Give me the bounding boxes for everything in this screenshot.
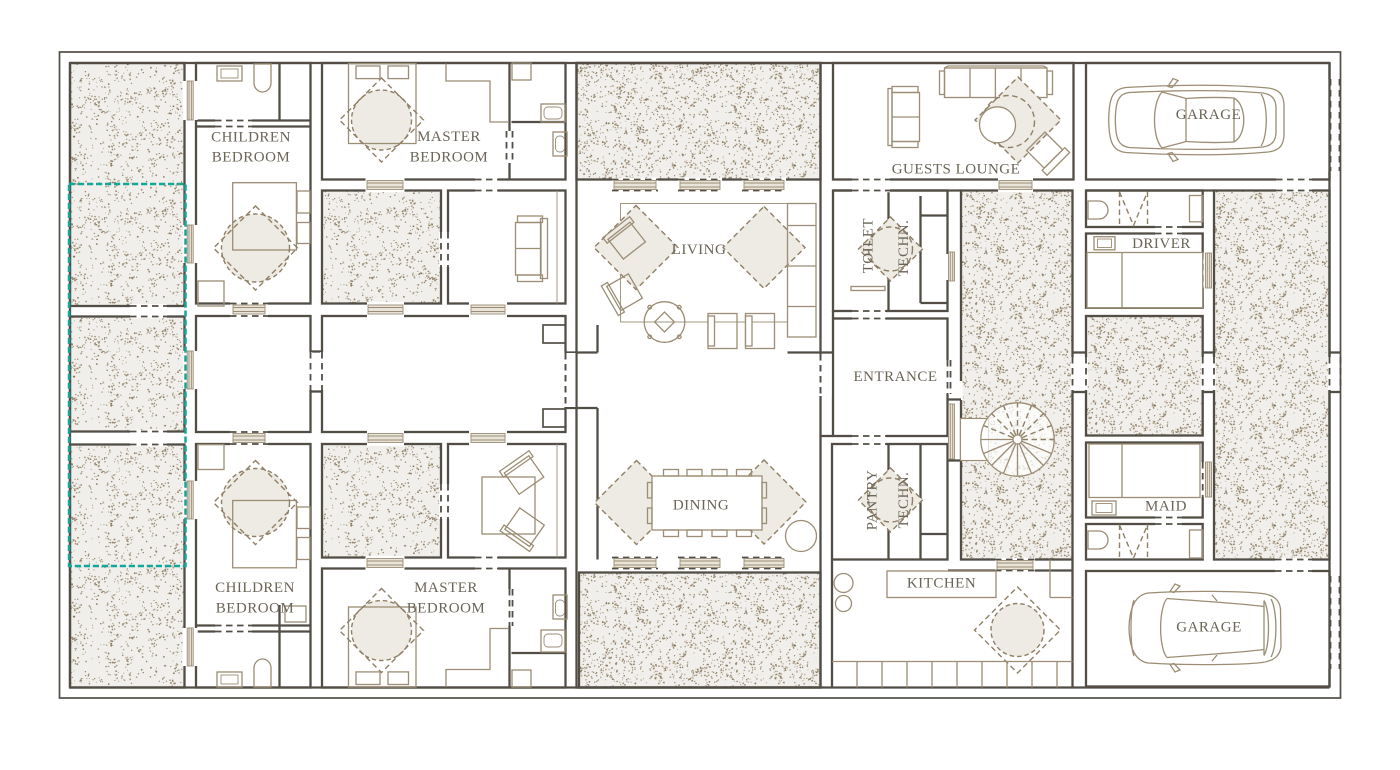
svg-text:LIVING: LIVING xyxy=(672,242,727,258)
svg-text:CHILDREN: CHILDREN xyxy=(211,130,291,146)
svg-text:MAID: MAID xyxy=(1145,499,1187,515)
svg-text:ENTRANCE: ENTRANCE xyxy=(854,369,938,385)
svg-text:DRIVER: DRIVER xyxy=(1132,236,1191,252)
svg-text:PANTRY: PANTRY xyxy=(865,470,881,531)
svg-text:KITCHEN: KITCHEN xyxy=(907,576,976,592)
svg-text:BEDROOM: BEDROOM xyxy=(407,601,486,617)
svg-text:DINING: DINING xyxy=(673,498,729,514)
svg-text:MASTER: MASTER xyxy=(417,129,481,145)
svg-text:CHILDREN: CHILDREN xyxy=(215,580,295,596)
svg-text:GUESTS LOUNGE: GUESTS LOUNGE xyxy=(892,162,1021,178)
svg-text:BEDROOM: BEDROOM xyxy=(216,601,295,617)
svg-text:TECHN.: TECHN. xyxy=(896,220,912,277)
svg-text:BEDROOM: BEDROOM xyxy=(212,150,291,166)
svg-text:BEDROOM: BEDROOM xyxy=(410,150,489,166)
svg-text:TOILET: TOILET xyxy=(861,218,877,273)
svg-text:MASTER: MASTER xyxy=(414,580,478,596)
svg-text:GARAGE: GARAGE xyxy=(1176,107,1242,123)
svg-text:TECHN.: TECHN. xyxy=(896,472,912,529)
svg-text:GARAGE: GARAGE xyxy=(1176,620,1242,636)
